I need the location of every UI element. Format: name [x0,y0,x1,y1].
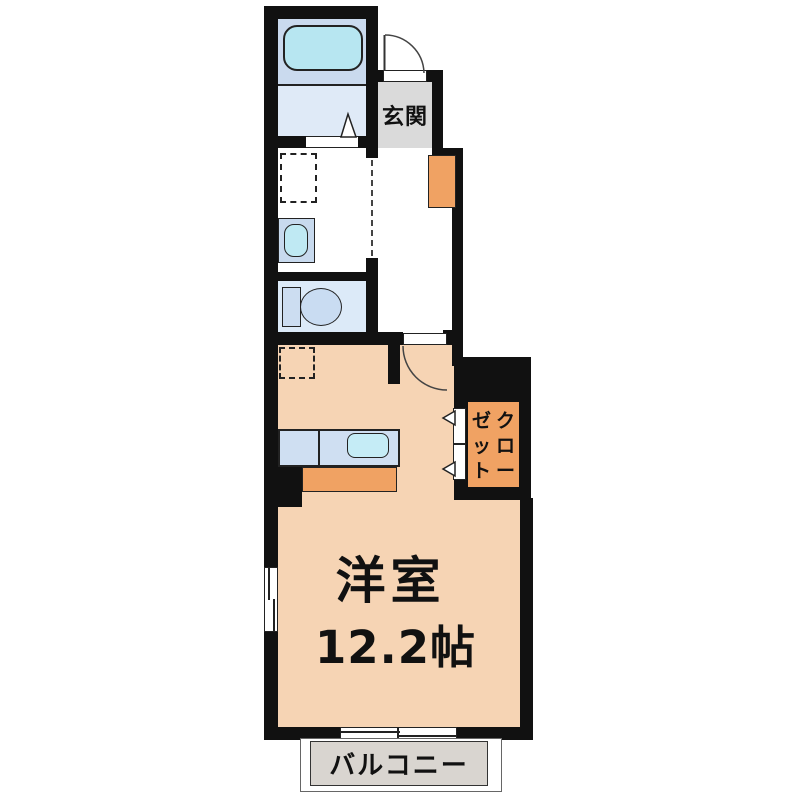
wall-washroom-right [366,258,378,345]
balcony-label: バルコニー [329,745,468,782]
kitchen-counter-divider [318,429,320,467]
lower-counter [302,467,397,492]
window-left-pane2 [273,599,275,632]
sliding-door-track [371,160,373,256]
window-left-pane1 [268,567,270,600]
wall-kitchen-chunk [264,466,302,507]
entrance-door-arc [385,35,424,73]
entrance-door-threshold [383,70,427,82]
balcony-inner: バルコニー [310,741,488,786]
wall-washroom-toilet [264,272,378,281]
kitchen-sink [347,433,389,458]
wall-right-lower [520,498,533,740]
window-balcony-pane1 [340,731,400,733]
bathtub [283,25,363,71]
toilet-tank [282,287,301,327]
bath-door-opening [306,136,358,148]
window-left [264,567,278,632]
closet-folding-door-split [453,443,466,445]
wall-genkan-right [432,70,443,158]
main-room-size: 12.2帖 [278,611,513,676]
window-balcony-pane2 [397,735,457,737]
toilet-bowl [300,288,342,326]
refrigerator-space [279,347,315,379]
vanity-basin [284,224,308,257]
wall-door-stub [388,345,400,384]
genkan-label: 玄関 [377,99,433,131]
closet-interior: クロー ゼット [466,400,521,489]
main-room-name: 洋室 [278,541,503,613]
closet-label-right: クロー [496,409,516,487]
closet-label-left: ゼット [472,409,492,487]
shoe-cabinet [428,155,456,208]
wall-room-top [264,332,403,345]
wall-bath-top [264,6,378,19]
wall-entrance-left [366,70,383,82]
bath-divider-line [278,84,366,86]
washing-machine-space [280,153,317,203]
room-door-threshold [403,333,447,345]
bathroom-floor [278,85,366,136]
floorplan: 玄関 クロー ゼット バルコニー 洋室 12.2帖 [0,0,800,800]
